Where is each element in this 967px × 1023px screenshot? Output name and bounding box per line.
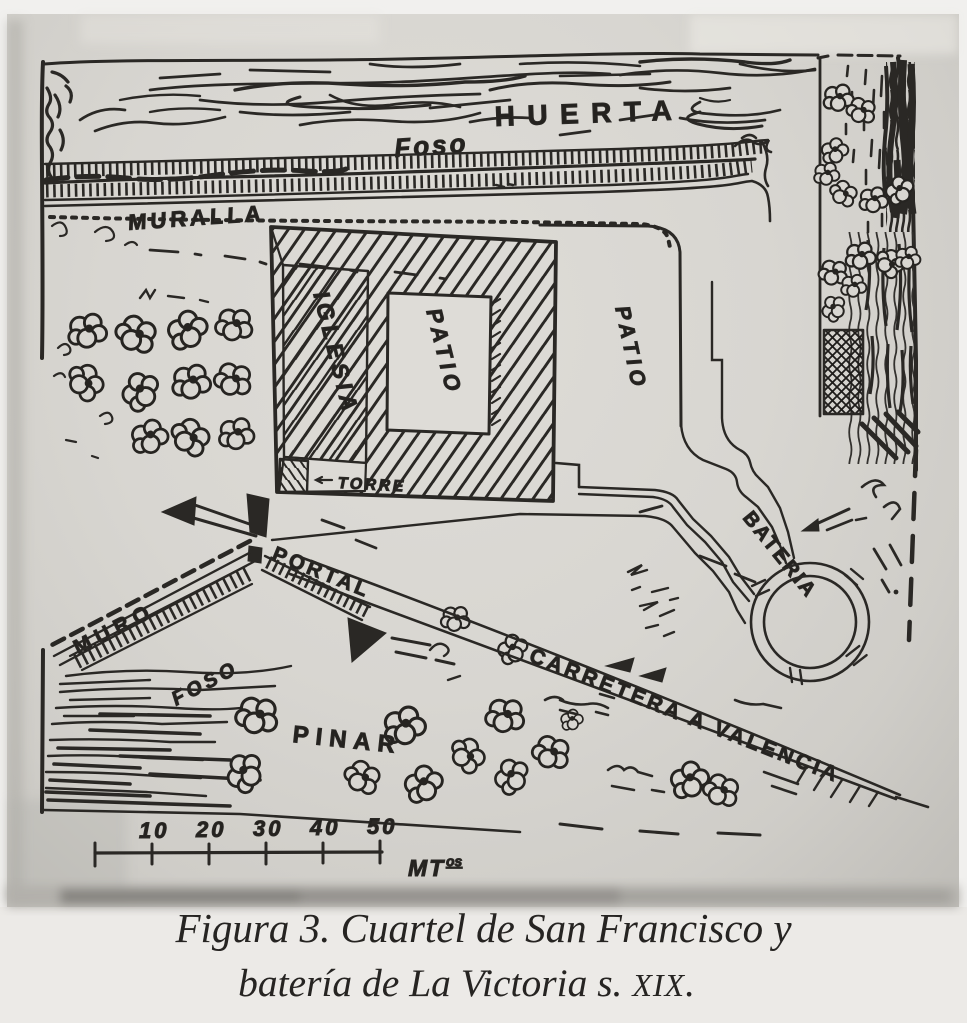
svg-text:40: 40 bbox=[309, 815, 340, 840]
svg-text:10: 10 bbox=[139, 818, 169, 843]
svg-text:MURALLA: MURALLA bbox=[128, 200, 265, 235]
svg-text:PORTAL: PORTAL bbox=[269, 542, 374, 602]
svg-text:PATIO: PATIO bbox=[610, 306, 651, 392]
svg-text:20: 20 bbox=[195, 817, 226, 842]
svg-text:os: os bbox=[446, 853, 463, 869]
svg-text:30: 30 bbox=[253, 816, 283, 841]
svg-text:TORRE: TORRE bbox=[336, 474, 408, 495]
svg-text:50: 50 bbox=[367, 814, 397, 839]
svg-text:HUERTA: HUERTA bbox=[494, 94, 685, 132]
svg-text:FOSO: FOSO bbox=[168, 657, 242, 711]
svg-text:MT: MT bbox=[408, 855, 445, 881]
